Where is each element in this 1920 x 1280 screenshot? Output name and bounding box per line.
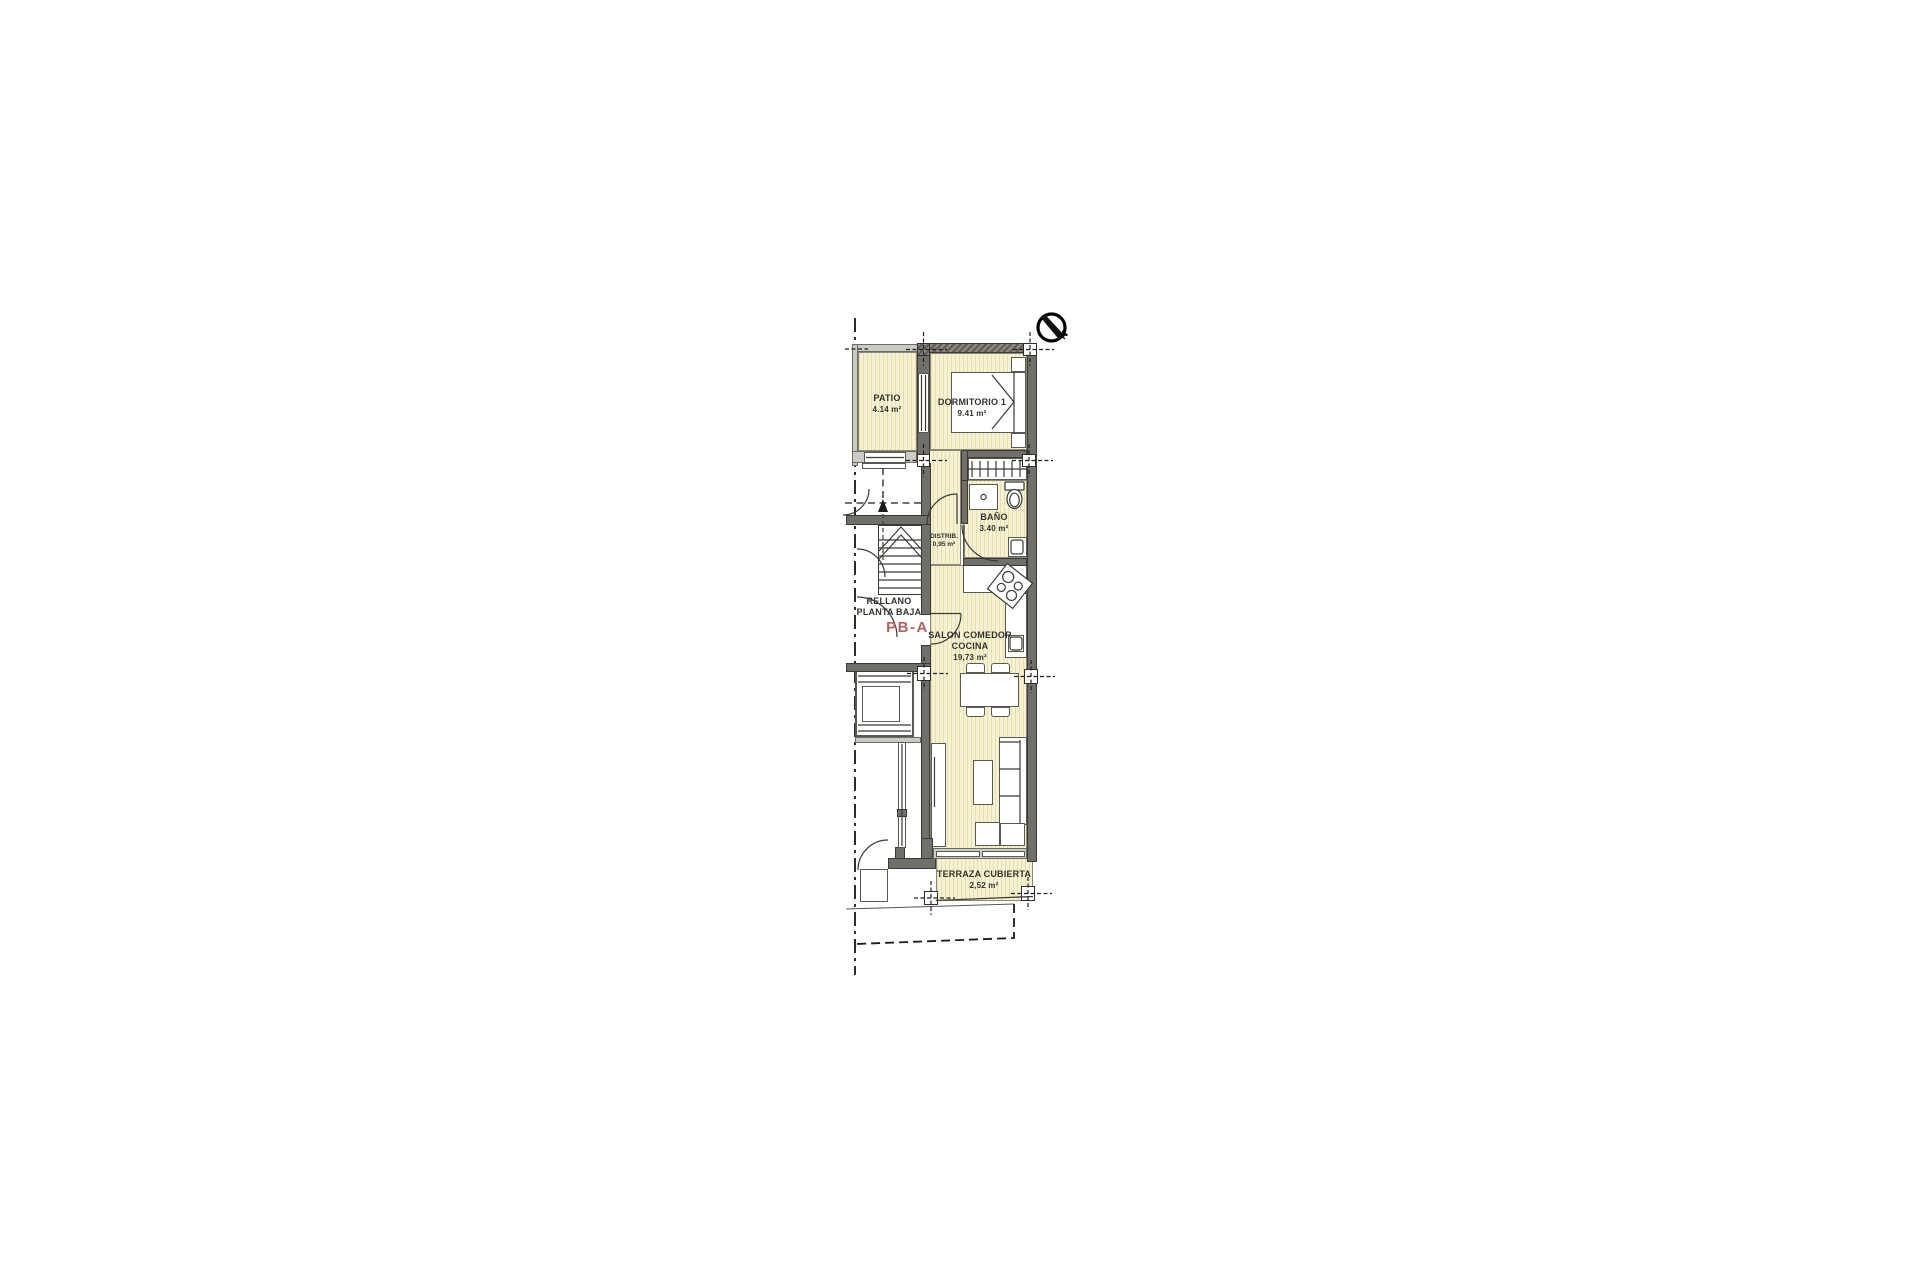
landing-label: RELLANO PLANTA BAJA — [848, 596, 930, 618]
room-name: PATIO — [855, 393, 919, 404]
unit-code-label: PB-A — [880, 619, 935, 636]
hidden-lines — [845, 468, 922, 503]
terrace-label: TERRAZA CUBIERTA 2,52 m² — [934, 869, 1034, 891]
patio-label: PATIO 4.14 m² — [855, 393, 919, 415]
bedroom-label: DORMITORIO 1 9.41 m² — [920, 397, 1024, 419]
room-area: 0,95 m² — [925, 541, 963, 549]
bathroom-label: BAÑO 3.40 m² — [962, 512, 1026, 534]
toilet — [1005, 482, 1024, 509]
stair-treads — [879, 527, 922, 588]
door-arc-neighbor-top — [843, 489, 869, 515]
stove — [988, 564, 1033, 609]
north-compass-icon: N — [1038, 314, 1069, 341]
room-name: BAÑO — [962, 512, 1026, 523]
door-arc-bedroom — [927, 494, 957, 524]
room-name: COCINA — [918, 641, 1022, 652]
door-arc-neighbor-bottom — [858, 840, 888, 870]
survey-line — [846, 904, 1014, 909]
room-area: 19,73 m² — [918, 652, 1022, 663]
grid-axes — [845, 332, 1055, 915]
plot-boundary-dashed — [856, 904, 1014, 944]
bathroom-sink-basin — [1011, 540, 1023, 554]
room-area: 2,52 m² — [934, 880, 1034, 891]
floor-plan-canvas: N PATIO 4.14 m² DORMITORIO 1 9.41 m² BAÑ… — [0, 0, 1920, 1280]
room-name: DISTRIB. — [925, 533, 963, 541]
distrib-label: DISTRIB. 0,95 m² — [925, 533, 963, 549]
door-arc-landing-upper — [857, 549, 885, 577]
room-area: 9.41 m² — [920, 408, 1024, 419]
room-area: 4.14 m² — [855, 404, 919, 415]
room-name: TERRAZA CUBIERTA — [934, 869, 1034, 880]
room-name: RELLANO — [848, 596, 930, 607]
terrace-bottom-edge — [936, 897, 1033, 901]
room-name: PLANTA BAJA — [848, 607, 930, 618]
shower-drain — [981, 494, 986, 499]
sofa-cushions — [999, 740, 1020, 823]
elevator-doors — [858, 676, 911, 731]
room-area: 3.40 m² — [962, 523, 1026, 534]
wardrobe-rail — [968, 461, 1027, 477]
room-name: DORMITORIO 1 — [920, 397, 1024, 408]
